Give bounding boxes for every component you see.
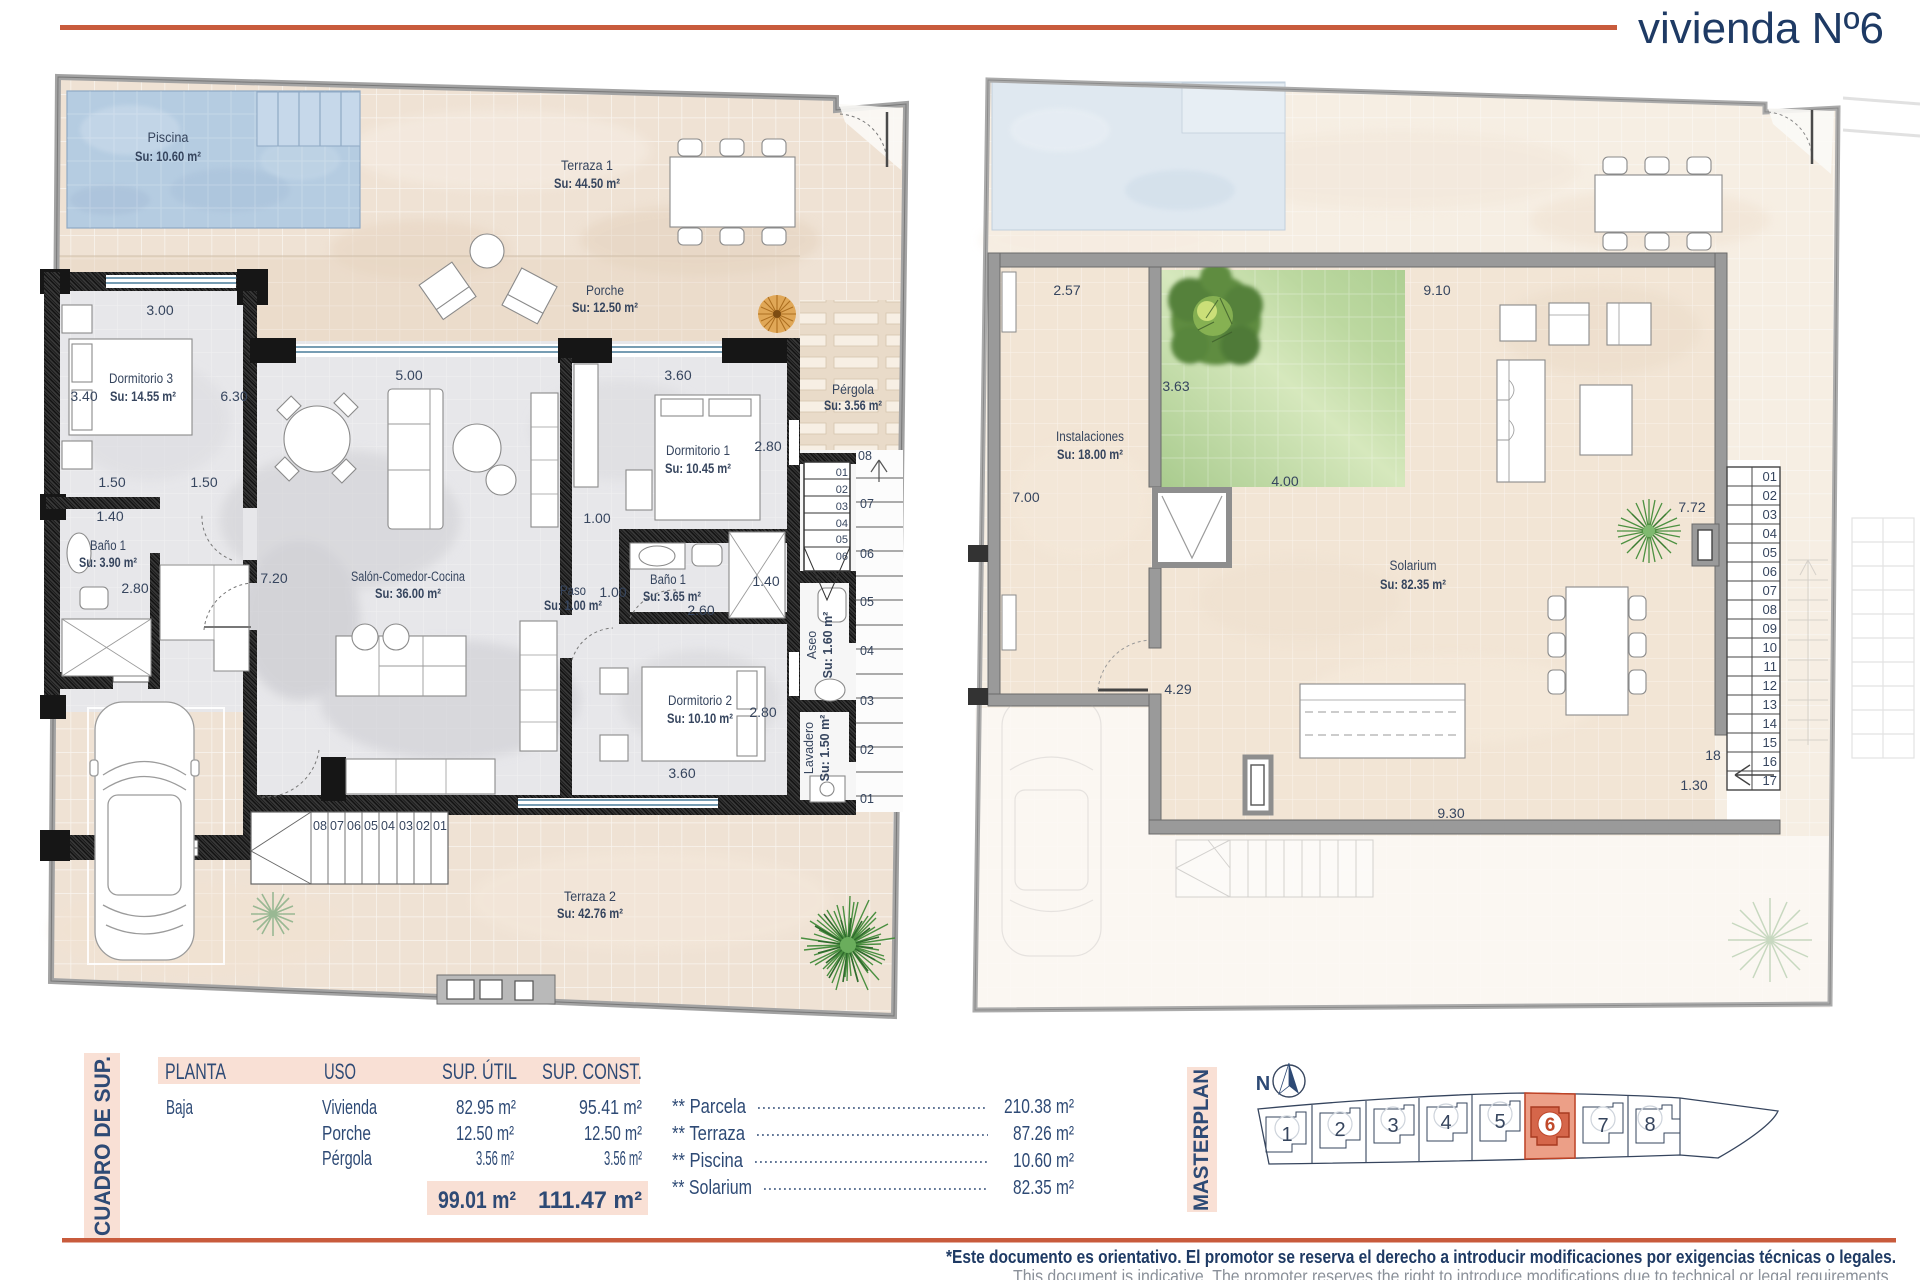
svg-text:3.56 m²: 3.56 m² bbox=[476, 1148, 514, 1170]
svg-text:Pérgola: Pérgola bbox=[322, 1148, 373, 1170]
svg-text:PLANTA: PLANTA bbox=[165, 1059, 226, 1084]
svg-text:02: 02 bbox=[836, 484, 848, 496]
svg-text:Salón-Comedor-Cocina: Salón-Comedor-Cocina bbox=[351, 569, 465, 584]
svg-text:Baño 1: Baño 1 bbox=[650, 572, 686, 587]
svg-text:USO: USO bbox=[324, 1059, 356, 1084]
svg-text:Su: 36.00 m²: Su: 36.00 m² bbox=[375, 586, 441, 601]
svg-text:87.26 m²: 87.26 m² bbox=[1013, 1123, 1074, 1145]
svg-text:Su: 42.76 m²: Su: 42.76 m² bbox=[557, 906, 623, 921]
svg-text:02: 02 bbox=[416, 819, 430, 833]
svg-text:1.00: 1.00 bbox=[599, 584, 626, 600]
svg-text:03: 03 bbox=[1763, 507, 1777, 522]
svg-text:4: 4 bbox=[1440, 1112, 1451, 1134]
svg-text:7.72: 7.72 bbox=[1678, 499, 1705, 515]
svg-text:05: 05 bbox=[1763, 545, 1777, 560]
svg-text:6.30: 6.30 bbox=[220, 388, 247, 404]
svg-text:210.38 m²: 210.38 m² bbox=[1004, 1096, 1074, 1118]
svg-text:3.63: 3.63 bbox=[1162, 378, 1189, 394]
svg-text:2.80: 2.80 bbox=[121, 580, 148, 596]
svg-text:6: 6 bbox=[1545, 1115, 1556, 1136]
svg-text:Baño 1: Baño 1 bbox=[90, 538, 126, 553]
svg-text:7.00: 7.00 bbox=[1012, 489, 1039, 505]
svg-text:3.56 m²: 3.56 m² bbox=[604, 1148, 642, 1170]
svg-text:5: 5 bbox=[1494, 1111, 1505, 1133]
svg-text:Su: 18.00 m²: Su: 18.00 m² bbox=[1057, 447, 1123, 462]
svg-text:9.30: 9.30 bbox=[1437, 805, 1464, 821]
svg-text:Vivienda: Vivienda bbox=[322, 1097, 378, 1119]
svg-text:03: 03 bbox=[860, 694, 874, 708]
svg-text:07: 07 bbox=[330, 819, 344, 833]
svg-text:MASTERPLAN: MASTERPLAN bbox=[1190, 1069, 1213, 1211]
svg-text:3.40: 3.40 bbox=[70, 388, 97, 404]
svg-text:2.60: 2.60 bbox=[687, 602, 714, 618]
svg-text:Dormitorio 1: Dormitorio 1 bbox=[666, 443, 730, 458]
svg-text:13: 13 bbox=[1763, 697, 1777, 712]
svg-text:2.57: 2.57 bbox=[1053, 282, 1080, 298]
svg-text:Su: 12.50 m²: Su: 12.50 m² bbox=[572, 300, 638, 315]
svg-text:04: 04 bbox=[381, 819, 395, 833]
svg-text:Su: 3.56 m²: Su: 3.56 m² bbox=[824, 398, 882, 413]
svg-text:01: 01 bbox=[860, 792, 874, 806]
svg-text:7.20: 7.20 bbox=[260, 570, 287, 586]
svg-text:07: 07 bbox=[1763, 583, 1777, 598]
svg-text:2.80: 2.80 bbox=[749, 704, 776, 720]
svg-text:3.00: 3.00 bbox=[146, 302, 173, 318]
svg-text:vivienda Nº6: vivienda Nº6 bbox=[1638, 4, 1884, 53]
svg-text:Terraza 1: Terraza 1 bbox=[561, 158, 613, 173]
svg-text:02: 02 bbox=[1763, 488, 1777, 503]
svg-text:1.00: 1.00 bbox=[583, 510, 610, 526]
svg-text:1.40: 1.40 bbox=[752, 573, 779, 589]
svg-text:4.29: 4.29 bbox=[1164, 681, 1191, 697]
svg-text:Paso: Paso bbox=[560, 583, 586, 598]
svg-text:03: 03 bbox=[399, 819, 413, 833]
svg-text:** Parcela: ** Parcela bbox=[672, 1096, 747, 1118]
svg-text:01: 01 bbox=[433, 819, 447, 833]
svg-text:7: 7 bbox=[1597, 1115, 1608, 1137]
svg-text:Dormitorio 3: Dormitorio 3 bbox=[109, 371, 173, 386]
svg-text:05: 05 bbox=[364, 819, 378, 833]
svg-text:Su: 1.00 m²: Su: 1.00 m² bbox=[544, 598, 602, 613]
svg-text:9.10: 9.10 bbox=[1423, 282, 1450, 298]
svg-text:3.60: 3.60 bbox=[668, 765, 695, 781]
svg-text:Pérgola: Pérgola bbox=[832, 382, 874, 397]
svg-text:16: 16 bbox=[1763, 754, 1777, 769]
svg-text:Solarium: Solarium bbox=[1390, 558, 1437, 573]
svg-text:8: 8 bbox=[1644, 1114, 1655, 1136]
svg-text:05: 05 bbox=[860, 595, 874, 609]
svg-text:14: 14 bbox=[1763, 716, 1777, 731]
svg-text:Su: 44.50 m²: Su: 44.50 m² bbox=[554, 176, 620, 191]
svg-text:** Terraza: ** Terraza bbox=[672, 1123, 746, 1145]
svg-text:Su: 14.55 m²: Su: 14.55 m² bbox=[110, 389, 176, 404]
svg-text:Su: 82.35 m²: Su: 82.35 m² bbox=[1380, 577, 1446, 592]
svg-text:Dormitorio 2: Dormitorio 2 bbox=[668, 693, 732, 708]
svg-text:99.01 m²: 99.01 m² bbox=[438, 1187, 516, 1214]
svg-text:06: 06 bbox=[1763, 564, 1777, 579]
svg-text:04: 04 bbox=[1763, 526, 1777, 541]
svg-text:Su: 10.60 m²: Su: 10.60 m² bbox=[135, 149, 201, 164]
svg-text:N: N bbox=[1256, 1073, 1270, 1095]
svg-text:Su: 1.60 m²: Su: 1.60 m² bbox=[821, 612, 835, 679]
svg-text:Baja: Baja bbox=[166, 1097, 194, 1119]
svg-text:4.00: 4.00 bbox=[1271, 473, 1298, 489]
svg-text:06: 06 bbox=[860, 547, 874, 561]
svg-text:Aseo: Aseo bbox=[805, 631, 819, 660]
svg-text:82.95 m²: 82.95 m² bbox=[456, 1097, 516, 1119]
svg-text:5.00: 5.00 bbox=[395, 367, 422, 383]
svg-text:10.60 m²: 10.60 m² bbox=[1013, 1150, 1074, 1172]
svg-text:3.60: 3.60 bbox=[664, 367, 691, 383]
svg-text:02: 02 bbox=[860, 743, 874, 757]
svg-text:Instalaciones: Instalaciones bbox=[1056, 429, 1124, 444]
svg-text:Su: 10.10 m²: Su: 10.10 m² bbox=[667, 711, 733, 726]
svg-text:SUP. CONST.: SUP. CONST. bbox=[542, 1059, 642, 1084]
svg-text:1: 1 bbox=[1281, 1124, 1292, 1146]
svg-text:06: 06 bbox=[347, 819, 361, 833]
svg-text:04: 04 bbox=[860, 644, 874, 658]
svg-text:07: 07 bbox=[860, 497, 874, 511]
svg-text:3: 3 bbox=[1387, 1115, 1398, 1137]
svg-text:Su: 10.45 m²: Su: 10.45 m² bbox=[665, 461, 731, 476]
svg-text:*Este documento es orientativo: *Este documento es orientativo. El promo… bbox=[946, 1247, 1896, 1267]
svg-text:Su: 1.50 m²: Su: 1.50 m² bbox=[818, 715, 832, 782]
svg-text:05: 05 bbox=[836, 534, 848, 546]
svg-text:This document is indicative. T: This document is indicative. The promote… bbox=[1013, 1266, 1893, 1280]
svg-text:SUP. ÚTIL: SUP. ÚTIL bbox=[442, 1059, 517, 1084]
svg-text:Porche: Porche bbox=[586, 283, 624, 298]
svg-text:01: 01 bbox=[1763, 469, 1777, 484]
svg-text:Su: 3.90 m²: Su: 3.90 m² bbox=[79, 555, 137, 570]
svg-text:09: 09 bbox=[1763, 621, 1777, 636]
svg-text:12: 12 bbox=[1763, 678, 1777, 693]
svg-text:Porche: Porche bbox=[322, 1123, 371, 1145]
svg-text:** Solarium: ** Solarium bbox=[672, 1177, 752, 1199]
svg-text:1.30: 1.30 bbox=[1680, 777, 1707, 793]
svg-text:12.50 m²: 12.50 m² bbox=[456, 1123, 514, 1145]
svg-text:08: 08 bbox=[1763, 602, 1777, 617]
svg-text:18: 18 bbox=[1705, 747, 1721, 763]
svg-text:111.47 m²: 111.47 m² bbox=[538, 1187, 642, 1214]
svg-text:Piscina: Piscina bbox=[148, 130, 189, 145]
svg-text:06: 06 bbox=[836, 551, 848, 563]
svg-text:08: 08 bbox=[313, 819, 327, 833]
svg-text:2.80: 2.80 bbox=[754, 438, 781, 454]
svg-text:12.50 m²: 12.50 m² bbox=[584, 1123, 642, 1145]
svg-text:Terraza 2: Terraza 2 bbox=[564, 889, 616, 904]
svg-text:15: 15 bbox=[1763, 735, 1777, 750]
svg-text:CUADRO DE SUP.: CUADRO DE SUP. bbox=[90, 1056, 115, 1236]
svg-text:1.40: 1.40 bbox=[96, 508, 123, 524]
svg-text:1.50: 1.50 bbox=[190, 474, 217, 490]
svg-text:1.50: 1.50 bbox=[98, 474, 125, 490]
svg-text:95.41 m²: 95.41 m² bbox=[579, 1097, 642, 1119]
svg-text:82.35 m²: 82.35 m² bbox=[1013, 1177, 1074, 1199]
svg-text:01: 01 bbox=[836, 467, 848, 479]
svg-text:04: 04 bbox=[836, 518, 848, 530]
svg-text:03: 03 bbox=[836, 501, 848, 513]
svg-text:** Piscina: ** Piscina bbox=[672, 1150, 744, 1172]
svg-text:10: 10 bbox=[1763, 640, 1777, 655]
svg-text:2: 2 bbox=[1334, 1119, 1345, 1141]
svg-text:Lavadero: Lavadero bbox=[802, 722, 816, 774]
svg-text:11: 11 bbox=[1764, 659, 1778, 674]
svg-text:08: 08 bbox=[858, 449, 872, 463]
